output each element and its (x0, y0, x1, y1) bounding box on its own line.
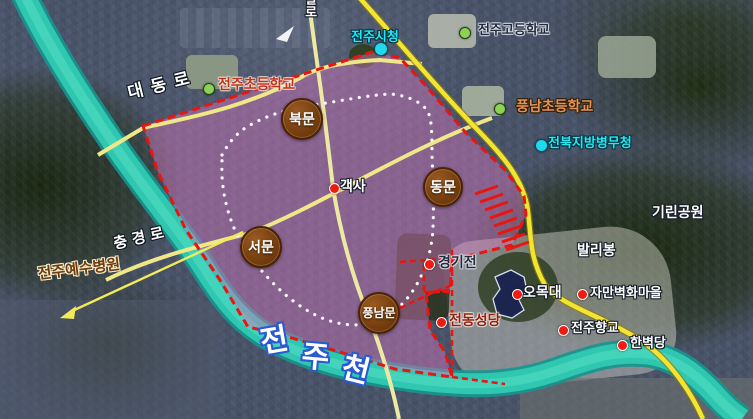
label-jeonju-city-hall: 전주시청 (351, 30, 399, 44)
label-hanbyeokdang: 한벽당 (630, 336, 666, 350)
poi-dot-jeonbuk-military-manpower-office (535, 139, 548, 152)
label-river-jeonjucheon-char-2: 천 (338, 352, 372, 389)
poi-dot-jeonju-elementary-school (203, 83, 215, 95)
poi-dot-pungnam-elementary-school (494, 103, 506, 115)
label-gyeonggijeon: 경기전 (438, 255, 477, 270)
label-balibong: 발리봉 (577, 243, 616, 258)
label-road-paldal-ro-partial: 달로 (303, 0, 317, 18)
label-jaman-mural-village: 자만벽화마을 (590, 286, 662, 300)
label-girin-park: 기린공원 (652, 205, 704, 220)
label-jeonju-high-school: 전주고등학교 (478, 23, 550, 37)
label-pungnam-elementary-school: 풍남초등학교 (516, 99, 593, 114)
poi-dot-hanbyeokdang (617, 340, 628, 351)
gate-badge-pungnammun-south-gate: 풍남문 (358, 292, 400, 334)
poi-dot-gaeksa (329, 183, 340, 194)
label-jeonju-hyanggyo: 전주향교 (571, 321, 619, 335)
label-jeonbuk-military-manpower-office: 전북지방병무청 (548, 136, 632, 150)
poi-dot-jeonju-hyanggyo (558, 325, 569, 336)
label-road-chunggyeong-ro: 충경로 (112, 224, 171, 252)
label-jeonju-jesus-hospital: 전주예수병원 (37, 257, 121, 283)
poi-dot-jaman-mural-village (577, 289, 588, 300)
label-omokdae: 오목대 (523, 285, 562, 300)
poi-dot-omokdae (512, 289, 523, 300)
gate-badge-dongmun-east-gate: 동문 (423, 167, 463, 207)
label-river-jeonjucheon-char-1: 주 (300, 341, 330, 375)
label-road-daedong-ro: 대동로 (126, 68, 199, 102)
gate-badge-seomun-west-gate: 서문 (240, 226, 282, 268)
poi-dot-jeonju-city-hall (374, 42, 388, 56)
label-jeondong-cathedral: 전동성당 (449, 313, 501, 328)
poi-dot-jeonju-high-school (459, 27, 471, 39)
poi-dot-jeondong-cathedral (436, 317, 447, 328)
gate-badge-bukmun-north-gate: 북문 (281, 98, 323, 140)
label-jeonju-elementary-school: 전주초등학교 (218, 77, 295, 92)
label-gaeksa: 객사 (340, 179, 366, 194)
labels-layer: 전주시청전주고등학교전주초등학교풍남초등학교전북지방병무청기린공원발리봉객사경기… (0, 0, 753, 419)
poi-dot-gyeonggijeon (424, 259, 435, 270)
jeonju-hanok-village-map: 전주시청전주고등학교전주초등학교풍남초등학교전북지방병무청기린공원발리봉객사경기… (0, 0, 753, 419)
label-river-jeonjucheon-char-0: 전 (258, 323, 291, 359)
